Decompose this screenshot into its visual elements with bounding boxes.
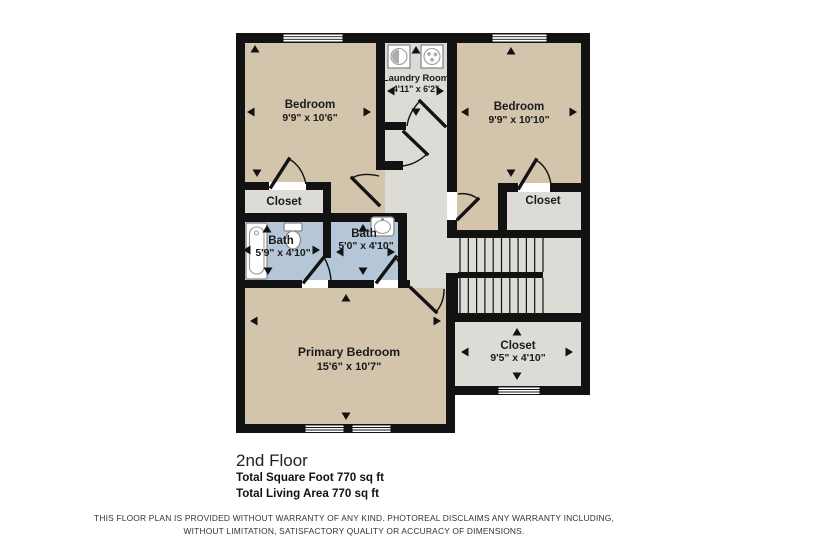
room-dims-bedroom-right: 9'9" x 10'10": [488, 115, 549, 126]
wall-segment: [447, 230, 590, 238]
room-dims-bath-left: 5'9" x 4'10": [255, 248, 310, 259]
floor-hall-stair-opening: [447, 238, 458, 273]
room-label-closet-left: Closet: [266, 196, 301, 208]
floor-bedroom-right-alcove: [457, 183, 498, 230]
floor-hall-upper: [385, 125, 447, 222]
dryer-icon: [421, 45, 443, 68]
total-square-foot: Total Square Foot 770 sq ft: [236, 471, 384, 484]
wall-segment: [328, 280, 374, 288]
wall-segment: [236, 182, 269, 190]
footer: 2nd Floor Total Square Foot 770 sq ft To…: [94, 451, 614, 536]
room-dims-primary-bedroom: 15'6" x 10'7": [317, 361, 382, 373]
window: [498, 387, 540, 395]
floorplan-page: Bedroom 9'9" x 10'6" Laundry Room 4'11" …: [0, 0, 825, 550]
wall-segment: [398, 280, 410, 288]
room-label-bath-right: Bath: [351, 228, 377, 240]
washer-icon: [388, 45, 410, 68]
wall-segment: [550, 183, 590, 192]
room-label-bedroom-right: Bedroom: [494, 101, 544, 113]
room-label-closet-bottom: Closet: [500, 340, 535, 352]
total-living-area: Total Living Area 770 sq ft: [236, 487, 379, 500]
wall-segment: [376, 122, 406, 130]
floor-hall-lower: [407, 222, 447, 288]
room-dims-laundry: 4'11" x 6'2": [393, 84, 439, 94]
room-dims-bedroom-left: 9'9" x 10'6": [282, 113, 337, 124]
wall-segment: [447, 43, 457, 192]
disclaimer-line1: THIS FLOOR PLAN IS PROVIDED WITHOUT WARR…: [94, 513, 614, 523]
window: [492, 34, 547, 42]
room-label-laundry: Laundry Room: [383, 72, 449, 83]
room-label-bath-left: Bath: [268, 235, 294, 247]
room-dims-bath-right: 5'0" x 4'10": [338, 241, 393, 252]
wall-segment: [323, 222, 331, 258]
window: [283, 34, 343, 42]
floorplan-drawing: Bedroom 9'9" x 10'6" Laundry Room 4'11" …: [0, 0, 825, 550]
wall-segment: [446, 313, 590, 322]
floor-bedroom-right: [457, 43, 581, 183]
wall-segment: [498, 183, 507, 238]
disclaimer-line2: WITHOUT LIMITATION, SATISFACTORY QUALITY…: [184, 526, 525, 536]
room-dims-closet-bottom: 9'5" x 4'10": [490, 353, 545, 364]
wall-segment: [376, 43, 385, 170]
wall-segment: [385, 161, 403, 170]
stair-divider: [458, 272, 543, 278]
wall-segment: [236, 33, 245, 433]
room-label-primary-bedroom: Primary Bedroom: [298, 345, 400, 359]
wall-segment: [236, 280, 302, 288]
window: [305, 424, 391, 433]
floor-title: 2nd Floor: [236, 451, 308, 470]
room-label-closet-right: Closet: [525, 195, 560, 207]
wall-segment: [581, 33, 590, 395]
room-label-bedroom-left: Bedroom: [285, 99, 335, 111]
